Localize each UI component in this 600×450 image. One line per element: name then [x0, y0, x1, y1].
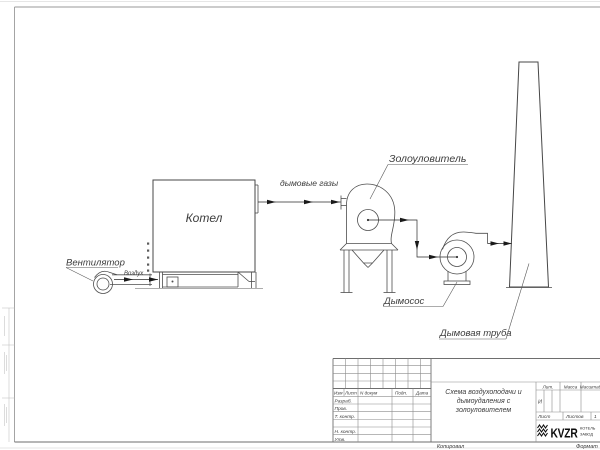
boiler-base: [160, 272, 257, 288]
revision-grid: [333, 359, 431, 389]
transfer-arrow-right: [400, 218, 409, 222]
lit-header: Лит.: [542, 384, 554, 389]
listov-label: Листов: [565, 414, 584, 420]
chimney-label: Дымовая труба: [439, 328, 512, 339]
sheet-frame: [0, 2, 600, 449]
fan-volute: [95, 271, 118, 277]
flue-arrow-1: [267, 200, 276, 204]
listov-value: 1: [594, 414, 597, 420]
exhauster-volute: [443, 232, 488, 250]
cyclone-scroll: [347, 184, 395, 244]
air-arrow-2: [149, 277, 158, 281]
col-izm: Изм: [334, 391, 343, 396]
flue-arrow-2: [304, 200, 313, 204]
margin-boxes: [2, 308, 15, 442]
smoke-exhauster-group: Дымосос: [383, 232, 488, 307]
kvzr-logo-text: KVZR: [551, 427, 578, 441]
cyclone-hopper: [352, 250, 384, 263]
transfer-arrow-down: [415, 241, 419, 250]
logo-subtext-1: КОТЕЛЬ: [580, 426, 596, 431]
schematic-svg: Вентилятор Воздух Котел: [0, 0, 600, 450]
signature-table: Изм Лист N докум Подп. Дата Разраб. Пров…: [333, 389, 431, 443]
kvzr-logo-icon: [538, 425, 548, 436]
exhauster-base: [444, 281, 470, 285]
doc-title-line3: золоуловителем: [455, 407, 512, 414]
ash-collector-leader: [370, 165, 388, 200]
fan-label: Вентилятор: [66, 258, 125, 269]
air-flow: Воздух: [114, 271, 158, 282]
lit-value: И: [538, 400, 542, 406]
doc-title-line1: Схема воздухоподачи и: [445, 388, 522, 396]
title-block: Изм Лист N докум Подп. Дата Разраб. Пров…: [333, 359, 600, 450]
smoke-exhauster-leader: [443, 282, 457, 307]
flue-arrow-3: [331, 200, 340, 204]
col-list: Лист: [344, 391, 357, 396]
row-t-kontr: Т. контр.: [335, 414, 356, 420]
boiler-group: Котел: [135, 180, 263, 289]
flue-gases-label: дымовые газы: [280, 178, 339, 188]
logo-subtext-2: ЗАВОД: [580, 432, 593, 437]
ash-collector-label: Золоуловитель: [389, 153, 466, 165]
masshtab-header: Масштаб: [580, 384, 600, 389]
flue-gas-flow: дымовые газы: [258, 178, 341, 204]
kopiroval-note: Копировал: [437, 444, 464, 450]
boiler-label: Котел: [186, 211, 223, 225]
chimney-body: [510, 62, 549, 287]
row-razrab: Разраб.: [335, 399, 352, 405]
air-arrow-1: [124, 277, 133, 281]
chimney-group: Дымовая труба: [439, 62, 552, 339]
chimney-label-leader: [506, 264, 529, 340]
list-label: Лист: [537, 414, 550, 420]
boiler-base-diagonal: [238, 272, 249, 282]
col-n-dokum: N докум: [360, 391, 378, 396]
fan-label-leader: [66, 268, 93, 282]
col-podp: Подп.: [395, 391, 407, 396]
transfer-line: [368, 220, 456, 257]
row-utv: Утв.: [335, 437, 346, 443]
smoke-exhauster-label: Дымосос: [383, 296, 425, 307]
exhaust-arrow-1: [491, 241, 500, 245]
transfer-arrow-2: [429, 255, 438, 259]
exhaust-arrow-2: [504, 241, 513, 245]
row-n-kontr: Н. контр.: [335, 429, 357, 435]
company-logo-cell: KVZR КОТЕЛЬ ЗАВОД: [538, 425, 596, 441]
air-label: Воздух: [124, 271, 144, 277]
fan-housing-circle: [94, 275, 113, 294]
row-prov: Пров.: [335, 406, 348, 412]
boiler-body: [153, 180, 255, 272]
massa-header: Масса: [564, 384, 578, 389]
col-data: Дата: [415, 391, 429, 396]
doc-title-line2: дымоудаления с: [457, 397, 511, 405]
format-note: Формат: [576, 444, 598, 450]
boiler-rivets: [147, 243, 149, 272]
drawing-sheet: Вентилятор Воздух Котел: [0, 0, 600, 450]
fan-inlet-circle: [97, 278, 109, 290]
exhaust-duct-flow: [488, 241, 513, 245]
